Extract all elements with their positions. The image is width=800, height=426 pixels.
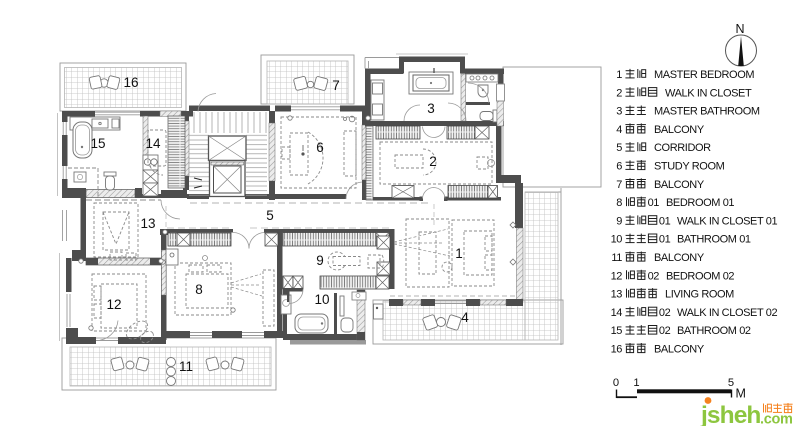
svg-text:4: 4 (461, 310, 469, 325)
svg-text:13: 13 (611, 289, 623, 301)
svg-text:1: 1 (455, 246, 463, 261)
svg-text:BEDROOM 01: BEDROOM 01 (666, 197, 734, 209)
svg-text:10: 10 (611, 234, 623, 246)
svg-text:9: 9 (316, 253, 324, 268)
svg-text:16: 16 (123, 75, 138, 90)
svg-text:8: 8 (195, 282, 203, 297)
svg-text:WALK IN CLOSET: WALK IN CLOSET (665, 87, 752, 99)
svg-text:7: 7 (332, 78, 340, 93)
svg-text:6: 6 (616, 161, 622, 173)
svg-text:BATHROOM 02: BATHROOM 02 (677, 325, 751, 337)
svg-text:MASTER BATHROOM: MASTER BATHROOM (654, 106, 760, 118)
svg-text:01: 01 (648, 197, 660, 209)
svg-text:WALK IN CLOSET 02: WALK IN CLOSET 02 (677, 307, 777, 319)
svg-text:7: 7 (616, 179, 622, 191)
svg-text:.com: .com (760, 412, 793, 426)
svg-text:3: 3 (616, 106, 622, 118)
svg-text:11: 11 (179, 359, 193, 374)
svg-text:N: N (735, 22, 744, 36)
svg-text:6: 6 (316, 140, 324, 155)
svg-text:4: 4 (616, 124, 622, 136)
svg-text:WALK IN CLOSET 01: WALK IN CLOSET 01 (677, 215, 777, 227)
svg-text:MASTER BEDROOM: MASTER BEDROOM (654, 69, 754, 81)
svg-text:9: 9 (616, 215, 622, 227)
svg-text:BALCONY: BALCONY (654, 124, 705, 136)
svg-text:CORRIDOR: CORRIDOR (654, 142, 711, 154)
svg-text:jsheh: jsheh (700, 402, 761, 426)
svg-text:15: 15 (90, 136, 105, 151)
svg-text:13: 13 (140, 216, 155, 231)
svg-text:5: 5 (616, 142, 622, 154)
svg-text:2: 2 (429, 154, 437, 169)
svg-text:02: 02 (648, 270, 660, 282)
svg-text:8: 8 (616, 197, 622, 209)
svg-text:14: 14 (145, 136, 161, 151)
svg-text:STUDY ROOM: STUDY ROOM (654, 161, 725, 173)
svg-text:02: 02 (659, 307, 671, 319)
svg-text:0: 0 (613, 377, 619, 389)
svg-text:1: 1 (616, 69, 622, 81)
svg-text:LIVING ROOM: LIVING ROOM (665, 289, 734, 301)
svg-text:BALCONY: BALCONY (654, 252, 705, 264)
svg-text:5: 5 (266, 208, 274, 223)
svg-text:BATHROOM 01: BATHROOM 01 (677, 234, 751, 246)
svg-text:10: 10 (314, 292, 329, 307)
svg-text:01: 01 (659, 234, 671, 246)
svg-text:BALCONY: BALCONY (654, 344, 705, 356)
svg-text:1: 1 (633, 377, 639, 389)
svg-text:M: M (736, 387, 746, 401)
svg-text:11: 11 (611, 252, 622, 264)
svg-text:15: 15 (611, 325, 623, 337)
svg-text:12: 12 (106, 297, 121, 312)
svg-text:16: 16 (611, 344, 623, 356)
svg-text:14: 14 (611, 307, 623, 319)
svg-text:01: 01 (659, 215, 671, 227)
svg-text:5: 5 (728, 377, 734, 389)
svg-text:12: 12 (611, 270, 623, 282)
svg-text:2: 2 (616, 87, 622, 99)
svg-text:BEDROOM 02: BEDROOM 02 (666, 270, 734, 282)
svg-text:3: 3 (427, 101, 435, 116)
svg-text:BALCONY: BALCONY (654, 179, 705, 191)
svg-text:02: 02 (659, 325, 671, 337)
